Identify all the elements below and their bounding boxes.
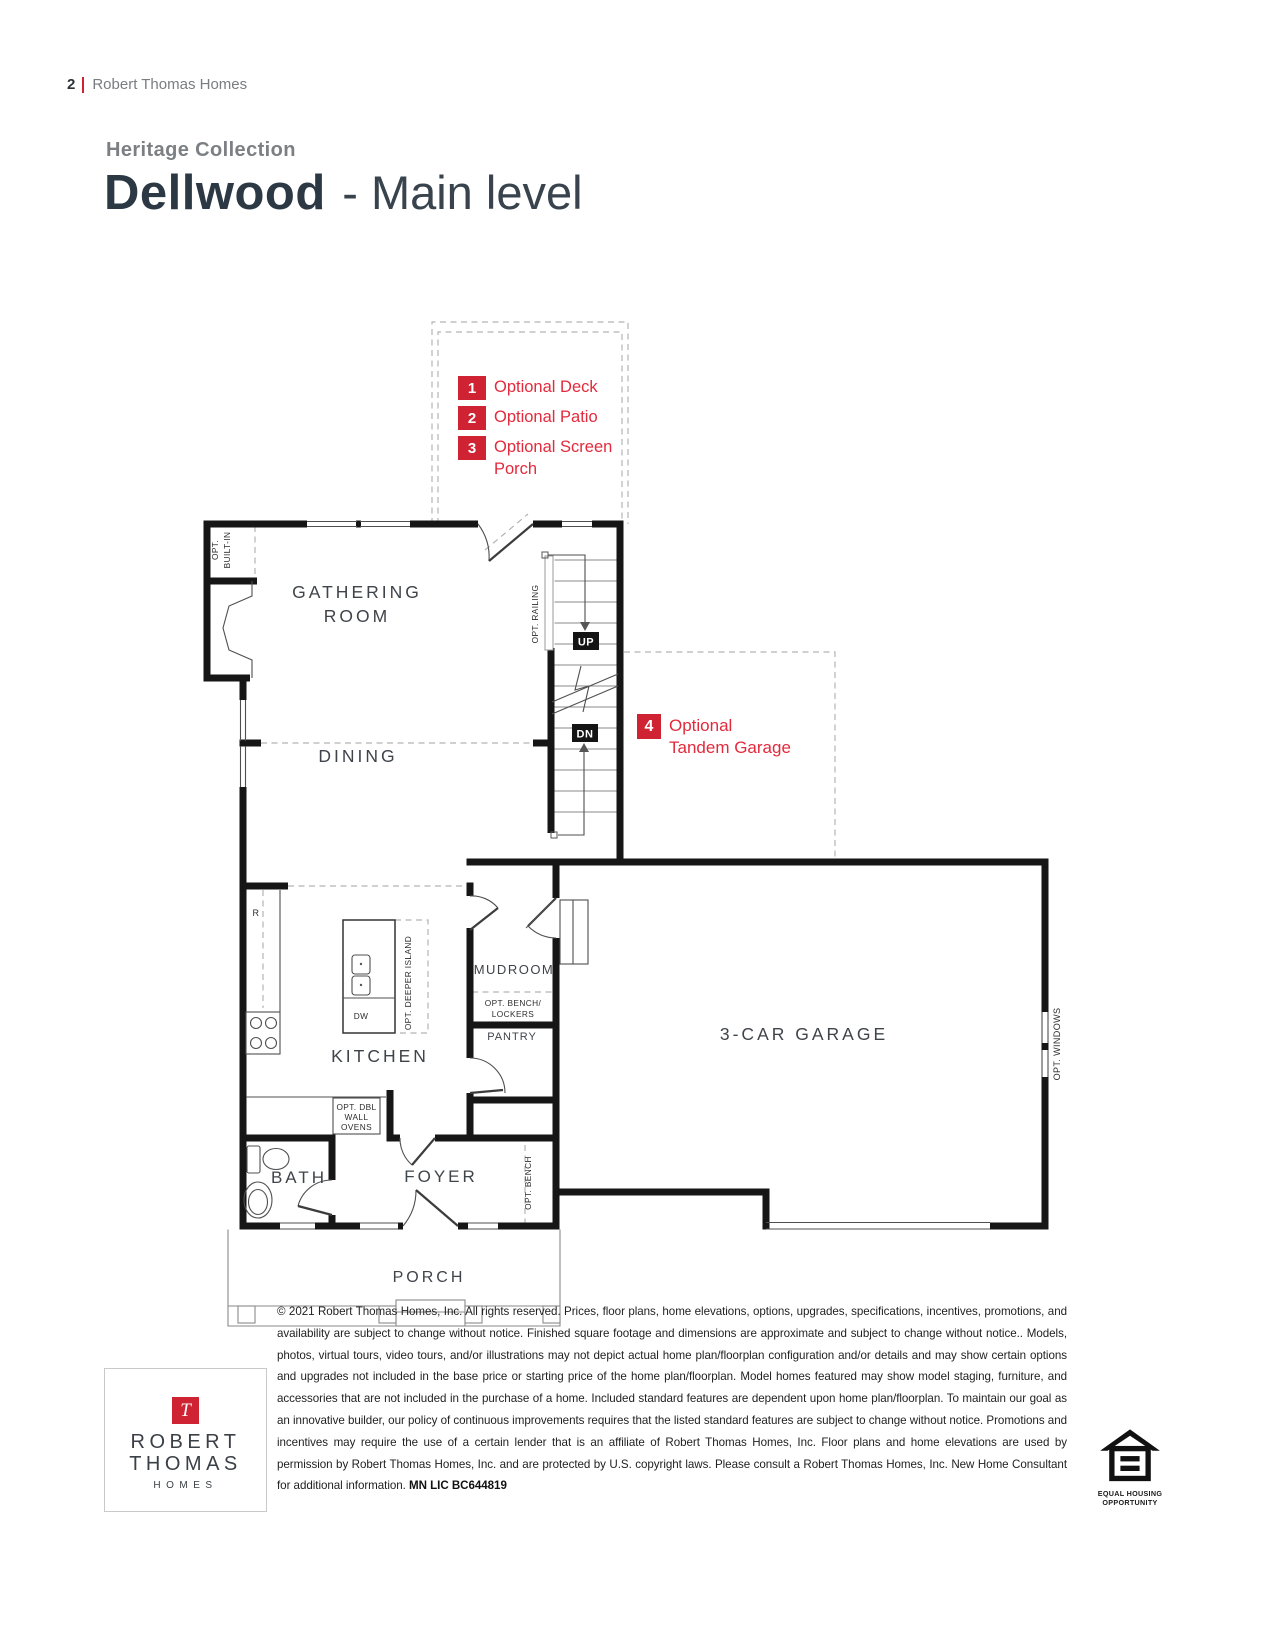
label-pantry: PANTRY [487,1031,537,1043]
legal-disclaimer: © 2021 Robert Thomas Homes, Inc. All rig… [277,1301,1067,1497]
logo-thomas: THOMAS [129,1453,242,1475]
note-opt-railing: OPT. RAILING [530,585,540,644]
note-opt-bench: OPT. BENCH [523,1156,533,1210]
label-mudroom: MUDROOM [474,962,555,977]
note-dishwasher: DW [354,1011,369,1021]
logo-monogram: T [172,1397,199,1424]
builder-logo: T ROBERT THOMAS HOMES [104,1368,267,1512]
legend-tandem-garage: 4 Optional Tandem Garage [637,714,791,766]
legend-label-patio: Optional Patio [494,408,598,426]
label-gathering-room: GATHERING [292,582,422,602]
kitchen-fixtures [246,890,395,1134]
doors [298,524,556,1226]
legend-label-screen-porch-2: Porch [494,459,612,481]
garage-fixtures [560,900,588,964]
logo-homes: HOMES [153,1480,217,1491]
note-opt: OPT. [210,540,220,560]
equal-housing-logo: EQUAL HOUSING OPPORTUNITY [1082,1428,1178,1508]
legend-label-deck: Optional Deck [494,378,598,396]
toilet-tank [247,1146,260,1173]
license-number: MN LIC BC644819 [409,1479,507,1492]
legend-badge-2: 2 [458,406,486,430]
up-label: UP [578,637,594,649]
up-arrow [580,622,590,631]
legend-badge-3: 3 [458,436,486,460]
legend-item-patio: 2 Optional Patio [458,406,612,430]
logo-robert: ROBERT [131,1431,241,1453]
label-bath: BATH [271,1168,327,1187]
disclaimer-text: © 2021 Robert Thomas Homes, Inc. All rig… [277,1305,1067,1492]
eho-line1: EQUAL HOUSING [1082,1489,1178,1498]
fireplace [223,581,252,678]
note-built-in: BUILT-IN [222,532,232,569]
note-opt-windows: OPT. WINDOWS [1052,1008,1062,1081]
note-wall: WALL [345,1112,369,1122]
label-foyer: FOYER [404,1167,478,1186]
legend-label-tandem: Optional [669,715,791,737]
legend-item-screen-porch: 3 Optional Screen Porch [458,436,612,481]
note-ovens: OVENS [341,1122,372,1132]
legend-badge-1: 1 [458,376,486,400]
toilet-bowl [263,1149,289,1170]
legend-label-tandem-2: Tandem Garage [669,737,791,759]
eho-line2: OPPORTUNITY [1082,1498,1178,1507]
opt-railing-strip [545,556,553,650]
label-gathering-room-2: ROOM [324,606,390,626]
note-refrigerator: R [253,908,260,918]
walls [204,521,1049,1230]
dn-label: DN [577,729,594,741]
legend-item-tandem-garage: 4 Optional Tandem Garage [637,714,791,760]
note-opt-bench-lockers-2: LOCKERS [492,1009,535,1019]
legend-item-deck: 1 Optional Deck [458,376,612,400]
note-opt-deeper-island: OPT. DEEPER ISLAND [403,936,413,1030]
note-opt-dbl: OPT. DBL [336,1102,376,1112]
note-opt-bench-lockers: OPT. BENCH/ [485,998,542,1008]
equal-housing-house-icon [1098,1428,1162,1482]
range [246,1012,280,1054]
legend-optional-items: 1 Optional Deck 2 Optional Patio 3 Optio… [458,376,612,487]
label-dining: DINING [318,746,397,766]
down-arrow [579,743,589,752]
plan-annotations: OPT. BUILT-IN OPT. RAILING OPT. DEEPER I… [210,532,1062,1210]
label-garage: 3-CAR GARAGE [720,1024,888,1044]
storage-shelf [560,900,588,964]
porch-post [238,1306,255,1323]
label-kitchen: KITCHEN [331,1046,429,1066]
legend-label-screen-porch: Optional Screen [494,437,612,459]
legend-badge-4: 4 [637,714,661,739]
label-porch: PORCH [393,1269,466,1286]
